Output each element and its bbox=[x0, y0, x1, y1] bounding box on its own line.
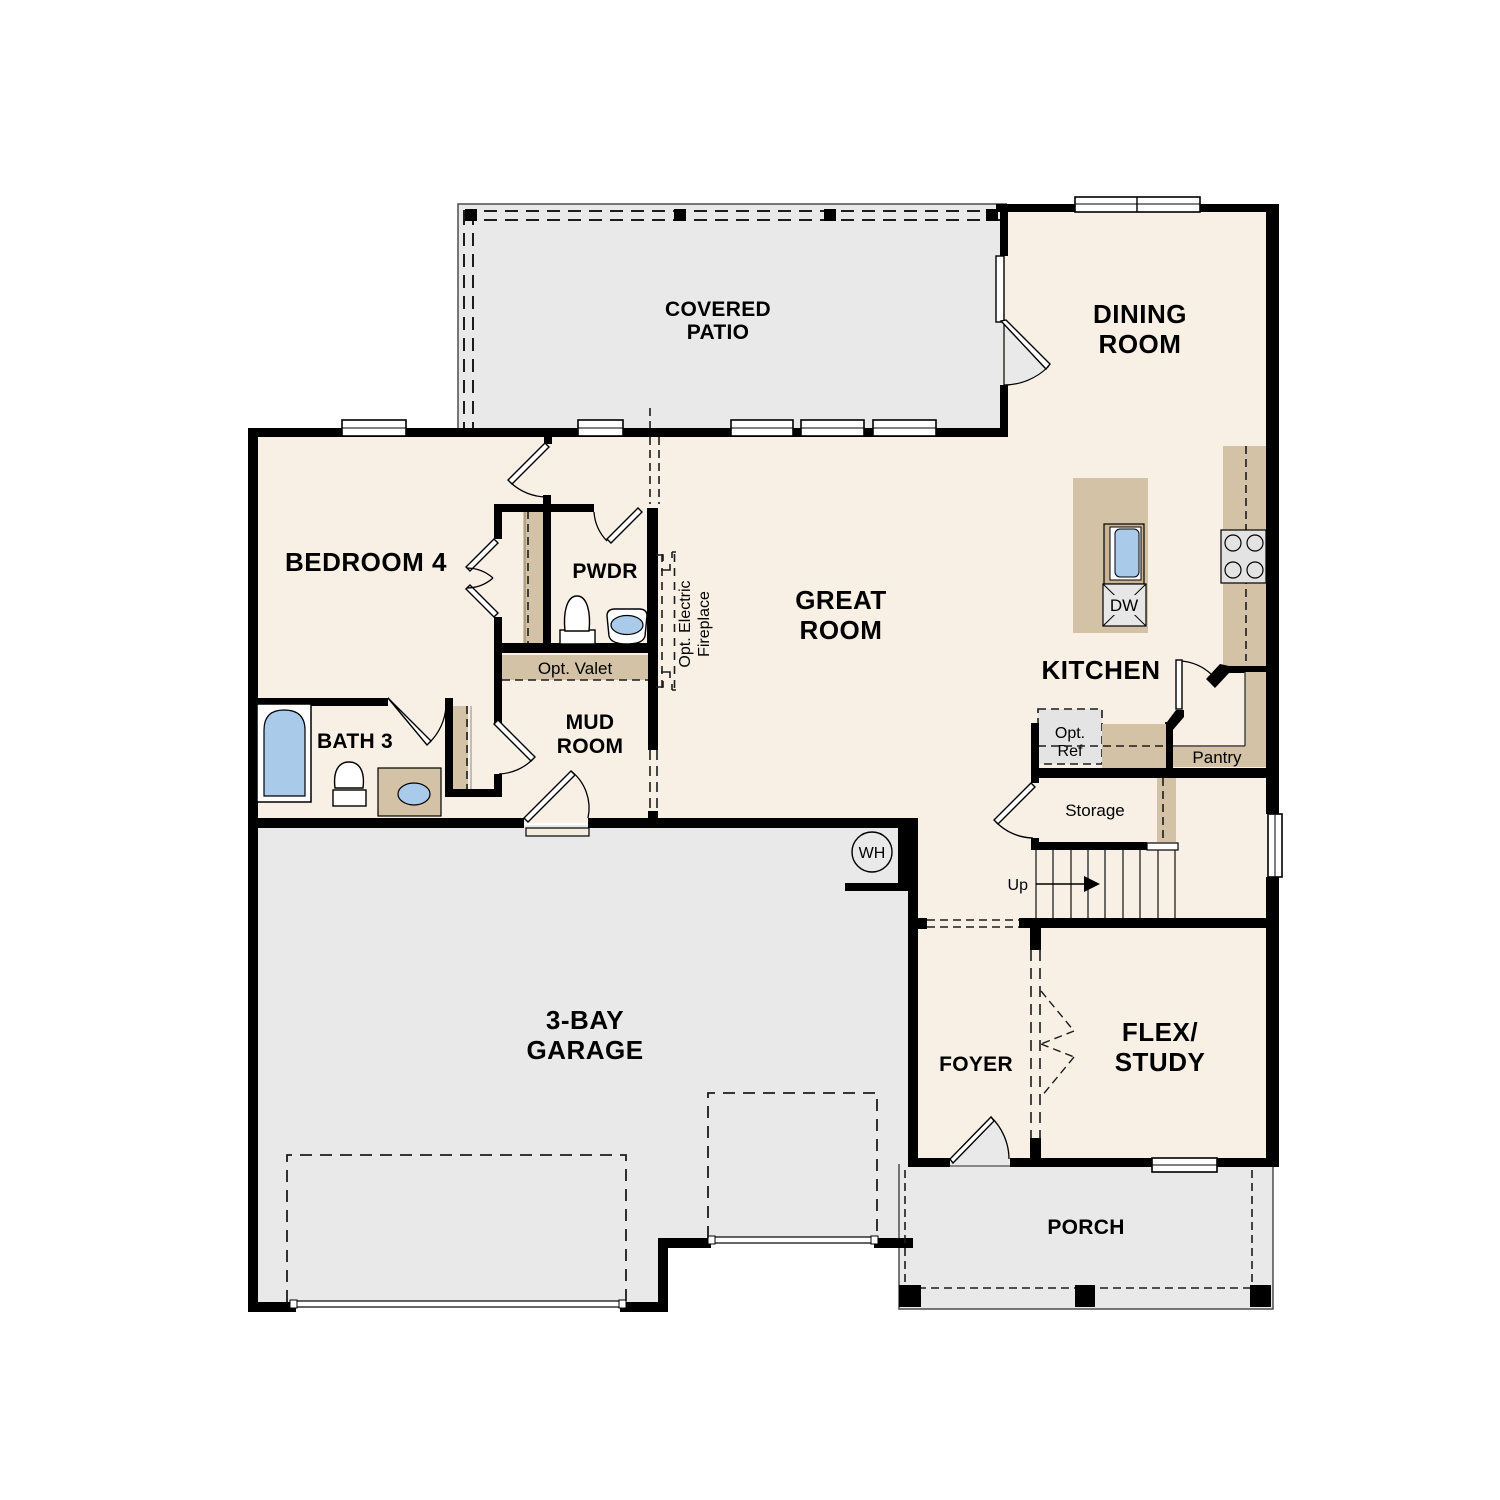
svg-text:GREAT: GREAT bbox=[795, 585, 887, 615]
svg-text:ROOM: ROOM bbox=[800, 615, 883, 645]
svg-text:PWDR: PWDR bbox=[572, 560, 637, 583]
svg-text:BATH 3: BATH 3 bbox=[317, 730, 393, 753]
svg-text:Fireplace: Fireplace bbox=[696, 591, 713, 657]
svg-text:Opt. Electric: Opt. Electric bbox=[677, 580, 694, 667]
svg-text:Pantry: Pantry bbox=[1192, 748, 1242, 767]
svg-text:ROOM: ROOM bbox=[1099, 329, 1182, 359]
svg-text:STUDY: STUDY bbox=[1115, 1047, 1206, 1077]
svg-text:WH: WH bbox=[859, 845, 886, 862]
svg-text:Storage: Storage bbox=[1065, 801, 1125, 820]
svg-text:FLEX/: FLEX/ bbox=[1122, 1017, 1198, 1047]
svg-text:PATIO: PATIO bbox=[687, 321, 750, 344]
svg-text:Opt.: Opt. bbox=[1055, 725, 1085, 742]
svg-text:PORCH: PORCH bbox=[1047, 1216, 1124, 1239]
svg-text:KITCHEN: KITCHEN bbox=[1041, 655, 1160, 685]
svg-text:COVERED: COVERED bbox=[665, 298, 771, 321]
svg-text:DW: DW bbox=[1110, 596, 1138, 615]
svg-text:FOYER: FOYER bbox=[939, 1053, 1013, 1076]
svg-text:DINING: DINING bbox=[1093, 299, 1187, 329]
svg-text:Up: Up bbox=[1008, 877, 1029, 894]
svg-text:BEDROOM 4: BEDROOM 4 bbox=[285, 547, 447, 577]
svg-text:ROOM: ROOM bbox=[557, 735, 624, 758]
svg-text:3-BAY: 3-BAY bbox=[546, 1005, 624, 1035]
svg-text:MUD: MUD bbox=[566, 711, 615, 734]
svg-text:GARAGE: GARAGE bbox=[526, 1035, 643, 1065]
svg-text:Opt. Valet: Opt. Valet bbox=[538, 659, 613, 678]
